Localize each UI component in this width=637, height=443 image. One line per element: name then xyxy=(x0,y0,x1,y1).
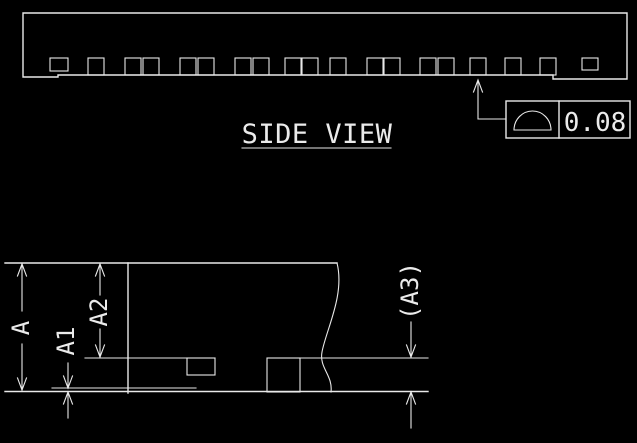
contact-tooth xyxy=(470,58,486,75)
contact-tooth xyxy=(180,58,196,75)
drawing-canvas: 0.08 SIDE VIEW xyxy=(0,0,637,443)
connector-body-outline xyxy=(23,13,627,79)
contact-tooth xyxy=(235,58,251,75)
housing-boss xyxy=(187,358,215,375)
contact-tooth xyxy=(253,58,269,75)
contact-tooth xyxy=(367,58,383,75)
contact-tooth xyxy=(330,58,346,75)
view-title: SIDE VIEW xyxy=(242,119,393,150)
dimension-label: A2 xyxy=(85,298,113,327)
left-end-slot xyxy=(50,58,68,71)
contact-tooth xyxy=(285,58,301,75)
contact-tooth xyxy=(143,58,159,75)
contact-tooth xyxy=(540,58,556,75)
dimension-A3: (A3) xyxy=(396,262,424,428)
profile-of-a-surface-icon xyxy=(514,111,551,130)
tolerance-value: 0.08 xyxy=(564,108,627,138)
engineering-drawing-page: 0.08 SIDE VIEW xyxy=(0,0,637,443)
contact-teeth-row xyxy=(88,58,556,75)
dimensions: A A1 A2 (A3) xyxy=(7,262,424,428)
contact-tooth xyxy=(438,58,454,75)
break-line xyxy=(322,263,339,392)
dimension-label: A xyxy=(7,320,35,335)
contact-tooth xyxy=(125,58,141,75)
contact-tooth xyxy=(302,58,318,75)
terminal-lead xyxy=(267,358,300,392)
right-end-slot xyxy=(582,58,598,70)
leader-line xyxy=(478,81,506,119)
dimension-label: (A3) xyxy=(396,262,424,320)
contact-tooth xyxy=(198,58,214,75)
contact-tooth xyxy=(88,58,104,75)
contact-tooth xyxy=(505,58,521,75)
dimension-A1: A1 xyxy=(52,327,80,418)
contact-tooth xyxy=(384,58,400,75)
dimension-A: A xyxy=(7,264,35,390)
tolerance-callout: 0.08 xyxy=(474,80,631,138)
dimension-label: A1 xyxy=(52,327,80,356)
dimension-A2: A2 xyxy=(85,264,113,357)
side-view-drawing xyxy=(23,13,627,79)
contact-tooth xyxy=(420,58,436,75)
